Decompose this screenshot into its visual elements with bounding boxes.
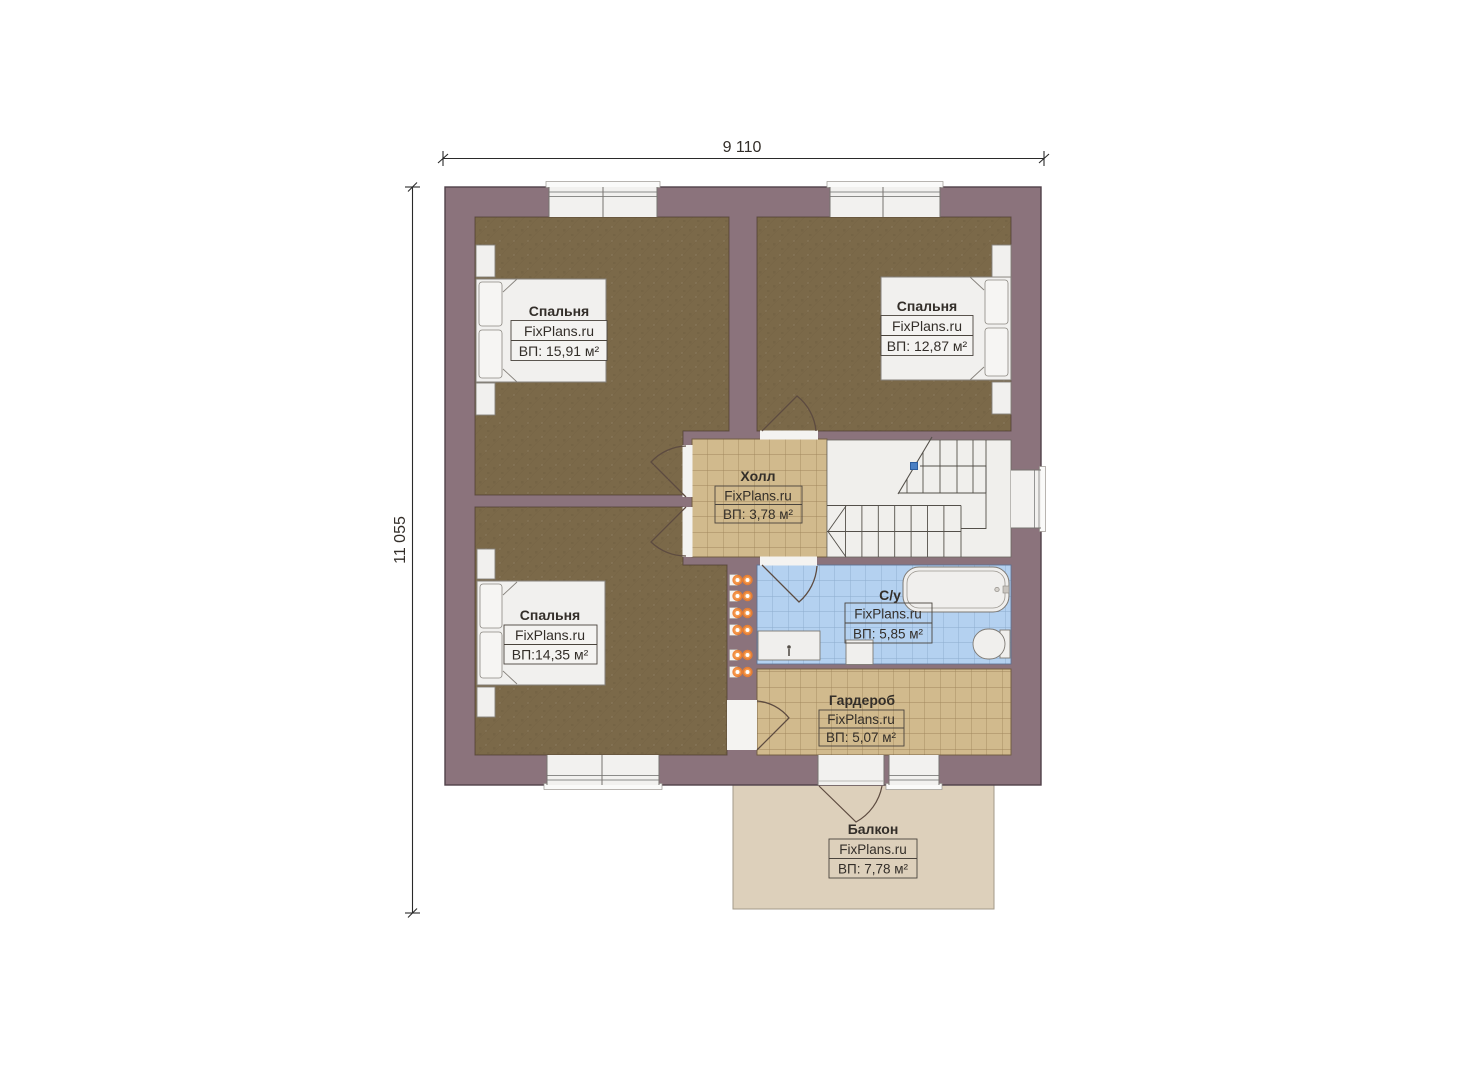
svg-text:FixPlans.ru: FixPlans.ru bbox=[839, 842, 907, 857]
svg-text:FixPlans.ru: FixPlans.ru bbox=[524, 323, 594, 339]
svg-text:FixPlans.ru: FixPlans.ru bbox=[892, 318, 962, 334]
svg-text:ВП: 3,78 м²: ВП: 3,78 м² bbox=[723, 507, 794, 522]
svg-text:ВП: 5,07 м²: ВП: 5,07 м² bbox=[826, 730, 897, 745]
svg-text:Спальня: Спальня bbox=[520, 607, 580, 623]
svg-text:Спальня: Спальня bbox=[529, 303, 589, 319]
svg-text:ВП: 5,85 м²: ВП: 5,85 м² bbox=[853, 627, 924, 642]
svg-text:Балкон: Балкон bbox=[848, 821, 899, 837]
svg-text:11 055: 11 055 bbox=[392, 516, 409, 564]
svg-text:Гардероб: Гардероб bbox=[829, 692, 896, 708]
svg-text:FixPlans.ru: FixPlans.ru bbox=[827, 712, 895, 727]
svg-text:FixPlans.ru: FixPlans.ru bbox=[515, 627, 585, 643]
svg-text:9 110: 9 110 bbox=[723, 139, 762, 156]
svg-text:ВП: 15,91 м²: ВП: 15,91 м² bbox=[519, 343, 600, 359]
svg-text:FixPlans.ru: FixPlans.ru bbox=[854, 607, 922, 622]
svg-text:FixPlans.ru: FixPlans.ru bbox=[724, 489, 792, 504]
svg-text:Спальня: Спальня bbox=[897, 298, 957, 314]
svg-text:Холл: Холл bbox=[740, 468, 775, 484]
svg-text:ВП:14,35 м²: ВП:14,35 м² bbox=[512, 647, 589, 663]
svg-text:ВП: 12,87 м²: ВП: 12,87 м² bbox=[887, 338, 968, 354]
svg-text:ВП: 7,78 м²: ВП: 7,78 м² bbox=[838, 862, 909, 877]
svg-text:С/у: С/у bbox=[879, 587, 901, 603]
